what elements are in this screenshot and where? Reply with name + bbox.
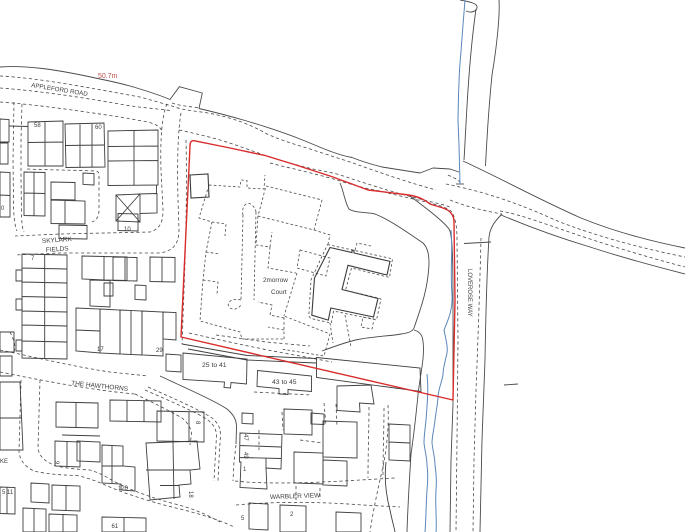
svg-text:25 to 41: 25 to 41 <box>202 362 227 369</box>
svg-text:120: 120 <box>118 486 129 492</box>
svg-text:Court: Court <box>271 289 287 296</box>
svg-text:10: 10 <box>124 227 131 233</box>
svg-text:17: 17 <box>97 347 104 353</box>
svg-text:2morrow: 2morrow <box>263 277 288 284</box>
svg-text:5 11: 5 11 <box>2 490 14 496</box>
svg-text:47: 47 <box>242 434 248 441</box>
svg-text:58: 58 <box>34 123 41 129</box>
svg-text:29: 29 <box>156 348 163 354</box>
svg-text:43 to 45: 43 to 45 <box>272 379 297 386</box>
svg-text:LOVEROSE WAY: LOVEROSE WAY <box>466 269 472 317</box>
svg-text:18: 18 <box>187 491 193 498</box>
svg-text:50.7m: 50.7m <box>98 73 118 80</box>
svg-text:60: 60 <box>95 125 102 131</box>
svg-text:KE: KE <box>0 459 8 465</box>
svg-text:61: 61 <box>112 524 119 530</box>
svg-text:49: 49 <box>242 452 248 459</box>
